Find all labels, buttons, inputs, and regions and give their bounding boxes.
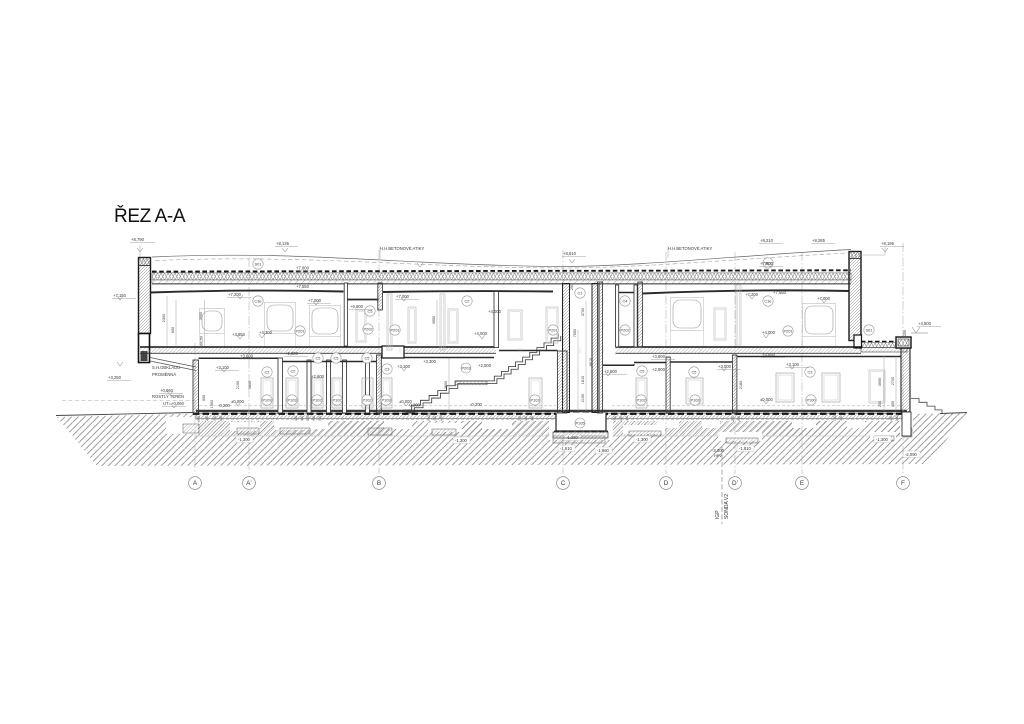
- svg-text:C: C: [561, 480, 566, 487]
- svg-text:2190: 2190: [581, 394, 585, 402]
- svg-text:P102: P102: [362, 398, 371, 403]
- svg-text:P105: P105: [575, 421, 584, 426]
- svg-text:3950: 3950: [878, 378, 882, 386]
- svg-text:±0,000: ±0,000: [231, 399, 244, 404]
- svg-text:+4,500: +4,500: [918, 321, 932, 326]
- svg-text:P102: P102: [312, 398, 321, 403]
- svg-text:-1,300: -1,300: [876, 437, 889, 442]
- svg-text:C5: C5: [334, 356, 339, 361]
- svg-text:C3e: C3e: [764, 299, 771, 304]
- svg-text:P100: P100: [806, 398, 816, 403]
- svg-text:-0,200: -0,200: [408, 403, 421, 408]
- svg-text:Dʼ: Dʼ: [732, 479, 738, 487]
- svg-text:+8,285: +8,285: [812, 238, 826, 243]
- svg-text:ROSTLÝ TERÉN: ROSTLÝ TERÉN: [152, 394, 184, 399]
- svg-text:P103: P103: [530, 398, 539, 403]
- svg-text:+3,850: +3,850: [232, 332, 246, 337]
- svg-text:+7,000: +7,000: [396, 294, 410, 299]
- svg-text:±0,000: ±0,000: [760, 397, 773, 402]
- svg-text:C4: C4: [623, 299, 629, 304]
- svg-text:1300: 1300: [833, 414, 837, 421]
- svg-text:P203: P203: [461, 366, 470, 371]
- svg-text:1300: 1300: [210, 400, 214, 408]
- svg-text:200: 200: [878, 401, 882, 407]
- svg-text:400: 400: [433, 415, 437, 421]
- svg-text:+7,200: +7,200: [745, 292, 759, 297]
- svg-text:E: E: [800, 480, 804, 487]
- svg-text:300: 300: [613, 415, 617, 421]
- svg-text:P102: P102: [332, 398, 341, 403]
- svg-text:2700: 2700: [891, 377, 895, 385]
- svg-text:C5: C5: [640, 369, 645, 374]
- svg-text:-1,300: -1,300: [636, 437, 649, 442]
- svg-text:-1,860: -1,860: [597, 448, 610, 453]
- svg-text:HPV: HPV: [714, 454, 722, 458]
- svg-text:+3,550: +3,550: [762, 352, 776, 357]
- svg-text:400: 400: [312, 415, 316, 421]
- svg-text:-2,090: -2,090: [905, 452, 918, 457]
- svg-text:C1: C1: [578, 291, 583, 296]
- svg-text:+3,100: +3,100: [397, 364, 411, 369]
- svg-text:+4,000: +4,000: [474, 331, 488, 336]
- svg-text:400: 400: [625, 415, 629, 421]
- svg-text:C2: C2: [465, 299, 470, 304]
- svg-text:+8,610: +8,610: [563, 251, 577, 256]
- svg-text:400: 400: [891, 401, 895, 407]
- svg-text:+8,790: +8,790: [131, 237, 145, 242]
- svg-text:+2,600: +2,600: [311, 374, 325, 379]
- svg-text:7500: 7500: [573, 329, 577, 337]
- svg-text:+7,150: +7,150: [113, 293, 127, 298]
- svg-text:1300: 1300: [895, 414, 899, 421]
- svg-text:2300: 2300: [162, 314, 166, 322]
- svg-text:2180: 2180: [739, 381, 743, 389]
- svg-text:900: 900: [202, 395, 206, 401]
- svg-text:1810: 1810: [581, 376, 585, 384]
- svg-text:+8,210: +8,210: [760, 238, 774, 243]
- svg-text:+6,600: +6,600: [350, 304, 364, 309]
- svg-text:+4,000: +4,000: [488, 309, 502, 314]
- svg-text:-1,810: -1,810: [739, 446, 752, 451]
- svg-text:P201: P201: [783, 329, 792, 334]
- svg-text:+3,100: +3,100: [786, 362, 800, 367]
- svg-text:A: A: [193, 480, 198, 487]
- svg-text:IGP: IGP: [715, 510, 721, 519]
- svg-text:-0,200: -0,200: [218, 403, 231, 408]
- svg-text:UT=+0,060: UT=+0,060: [163, 401, 185, 406]
- svg-text:P103: P103: [287, 398, 296, 403]
- svg-text:-1,300: -1,300: [455, 438, 468, 443]
- svg-text:-0,200: -0,200: [470, 402, 483, 407]
- svg-text:P201: P201: [295, 329, 304, 334]
- svg-text:-1,610: -1,610: [560, 446, 573, 451]
- svg-text:+3,600: +3,600: [240, 354, 254, 359]
- svg-text:H.H.BETONOVÉ ATIKY: H.H.BETONOVÉ ATIKY: [668, 246, 712, 251]
- svg-text:400: 400: [294, 415, 298, 421]
- svg-text:600: 600: [171, 327, 175, 333]
- svg-text:P103: P103: [381, 398, 390, 403]
- svg-text:D: D: [664, 480, 669, 487]
- svg-text:C2: C2: [291, 369, 296, 374]
- svg-text:P202: P202: [620, 328, 629, 333]
- svg-text:P201: P201: [390, 328, 399, 333]
- svg-text:+3,000: +3,000: [718, 364, 732, 369]
- svg-text:200: 200: [518, 415, 522, 421]
- svg-text:C3e: C3e: [254, 299, 261, 304]
- svg-text:+3,100: +3,100: [216, 365, 230, 370]
- svg-text:PROMĚNNÁ: PROMĚNNÁ: [152, 372, 176, 377]
- svg-text:400: 400: [737, 415, 741, 421]
- svg-text:-1,300: -1,300: [238, 437, 251, 442]
- svg-text:S01: S01: [255, 262, 262, 267]
- svg-text:200: 200: [731, 415, 735, 421]
- svg-text:+2,800: +2,800: [285, 351, 299, 356]
- svg-text:600: 600: [219, 415, 223, 421]
- svg-text:P102: P102: [636, 398, 645, 403]
- svg-text:+7,000: +7,000: [308, 298, 322, 303]
- svg-text:C5: C5: [316, 356, 321, 361]
- svg-text:+7,000: +7,000: [817, 296, 831, 301]
- svg-text:400: 400: [300, 415, 304, 421]
- svg-text:3600: 3600: [248, 381, 252, 389]
- svg-text:+7,550: +7,550: [296, 284, 310, 289]
- svg-text:1300: 1300: [427, 414, 431, 421]
- svg-text:3700: 3700: [581, 308, 585, 316]
- svg-text:-3,300: -3,300: [712, 448, 725, 453]
- svg-text:S.H.OBKLADU: S.H.OBKLADU: [152, 365, 180, 370]
- svg-text:150: 150: [200, 336, 204, 342]
- svg-text:C5: C5: [365, 356, 370, 361]
- svg-text:C2: C2: [265, 370, 270, 375]
- svg-text:C3: C3: [808, 370, 813, 375]
- svg-text:SONDA V2: SONDA V2: [724, 494, 730, 519]
- svg-text:+8,195: +8,195: [881, 241, 895, 246]
- svg-text:+7,200: +7,200: [228, 292, 242, 297]
- svg-text:C5: C5: [692, 370, 697, 375]
- svg-text:ŘEZ A-A: ŘEZ A-A: [114, 205, 186, 227]
- svg-text:P103: P103: [262, 398, 271, 403]
- svg-text:P103: P103: [690, 398, 699, 403]
- svg-text:3600: 3600: [444, 381, 448, 389]
- svg-text:P201: P201: [548, 328, 557, 333]
- svg-text:8610: 8610: [589, 358, 593, 366]
- svg-text:900: 900: [197, 415, 201, 421]
- svg-text:P202: P202: [363, 327, 372, 332]
- svg-text:+0,660: +0,660: [160, 388, 174, 393]
- svg-text:400: 400: [530, 415, 534, 421]
- svg-text:+4,300: +4,300: [259, 330, 273, 335]
- svg-text:Aʼ: Aʼ: [246, 479, 252, 487]
- svg-text:400: 400: [524, 415, 528, 421]
- svg-text:S01: S01: [866, 328, 873, 333]
- svg-text:300: 300: [839, 415, 843, 421]
- svg-text:250: 250: [903, 330, 907, 336]
- svg-text:900: 900: [318, 415, 322, 421]
- svg-text:+2,000: +2,000: [478, 363, 492, 368]
- svg-text:2100: 2100: [236, 381, 240, 389]
- svg-text:400: 400: [200, 342, 204, 348]
- svg-text:+3,250: +3,250: [108, 375, 122, 380]
- svg-text:1300: 1300: [439, 414, 443, 421]
- svg-text:250: 250: [570, 284, 574, 290]
- svg-text:300: 300: [213, 415, 217, 421]
- svg-text:+3,600: +3,600: [652, 354, 666, 359]
- svg-text:H.H.BETONOVÉ ATIKY: H.H.BETONOVÉ ATIKY: [380, 246, 424, 251]
- svg-text:+2,900: +2,900: [652, 367, 666, 372]
- svg-text:B: B: [377, 480, 381, 487]
- svg-text:+3,300: +3,300: [423, 359, 437, 364]
- svg-text:F: F: [901, 480, 905, 487]
- svg-text:400: 400: [889, 415, 893, 421]
- svg-text:C3: C3: [385, 367, 390, 372]
- svg-text:1300: 1300: [306, 414, 310, 421]
- svg-text:3500: 3500: [199, 312, 203, 320]
- svg-text:+7,550: +7,550: [773, 290, 787, 295]
- svg-text:300: 300: [619, 415, 623, 421]
- svg-text:200: 200: [205, 415, 209, 421]
- svg-text:3950: 3950: [432, 316, 436, 324]
- svg-text:+8,135: +8,135: [276, 241, 290, 246]
- svg-text:+7,800: +7,800: [296, 266, 310, 271]
